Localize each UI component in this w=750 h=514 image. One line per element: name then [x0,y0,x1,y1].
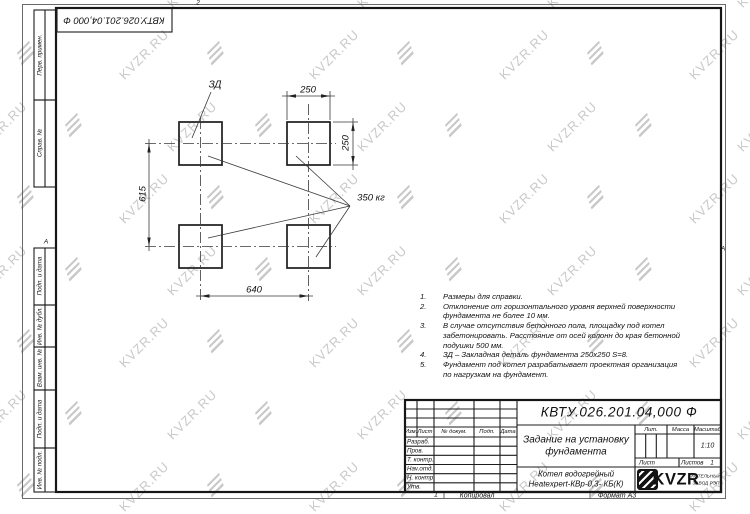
stamp-inv-dubl: Инв. № дубл. [37,307,44,345]
notes-list: 1.Размеры для справки. 2.Отклонение от г… [417,292,681,379]
row-prov: Пров. [407,447,423,454]
mass-label: Масса [672,427,689,433]
centerlines [145,104,336,301]
col-data: Дата [500,429,515,435]
designation-stamp-rotated: КВТУ.026.201.04,000 Ф [63,15,164,26]
stamp-podp-data-1: Подп. и дата [37,257,44,296]
zone-marker-right: А [721,246,725,253]
zone-marker-left: А [44,239,48,246]
sheets-value: 1 [710,459,714,466]
document-title-line2: фундамента [545,447,606,458]
title-block-designation: КВТУ.026.201.04,000 Ф [541,405,698,420]
logo-subtitle-line1: КОТЕЛЬНЫЙ [691,474,721,479]
note-item-5: 5.Фундамент под котел разрабатывает прое… [417,360,681,379]
note-item-1: 1.Размеры для справки. [417,292,681,302]
note-item-3: 3.В случае отсутствия бетонного пола, пл… [417,321,681,350]
stamp-vzam-inv: Взам. инв. № [37,349,44,387]
sheet-label: Лист [639,459,655,466]
dim-top-250: 250 [300,85,316,96]
row-razrab: Разраб. [407,438,429,445]
drawing-geometry [0,0,750,500]
dim-right-250: 250 [341,135,352,151]
zone-marker-bottom: 1 [434,492,438,499]
dim-left-615: 615 [138,186,149,202]
embed-detail-label: ЗД [209,80,222,91]
note-item-4: 4.ЗД – Закладная деталь фундамента 250х2… [417,350,681,360]
product-name-line2: Heatexpert-КВр-0,3- КБ(К) [529,480,624,489]
embed-detail-leader [192,92,211,138]
dim-bottom-640: 640 [246,285,262,296]
lit-label: Лит. [644,427,658,433]
note-item-2: 2.Отклонение от горизонтального уровня в… [417,302,681,321]
leader-lines [192,92,350,257]
row-t-kontr: Т. контр. [407,456,434,463]
col-dokum: № докум. [441,429,467,435]
row-utv: Утв. [407,484,421,491]
logo-subtitle-line2: ЗАВОД РЭП [693,481,720,486]
zone-marker-top: 2 [196,0,200,7]
stamp-perv-primen: Перв. примен. [37,34,44,75]
load-leaders [208,156,350,257]
col-podp: Подп. [479,429,494,435]
copied-label: Копировал [460,492,495,499]
stamp-inv-podl: Инв. № подл. [37,451,44,489]
row-n-kontr: Н. контр. [407,475,435,482]
col-list: Лист [418,429,433,435]
row-nach-otd: Нач.отд. [407,466,433,473]
col-izm: Изм. [405,429,417,435]
sheets-label: Листов [681,459,704,466]
load-label: 350 кг [357,193,385,204]
scale-label: Масштаб [694,427,721,433]
product-name-line1: Котел водогрейный [538,470,614,479]
stamp-podp-data-2: Подп. и дата [37,400,44,439]
format-label: Формат А3 [598,492,636,499]
scale-value: 1:10 [701,443,715,450]
stamp-sprav-no: Справ. № [37,129,44,157]
document-title-line1: Задание на установку [523,435,629,446]
